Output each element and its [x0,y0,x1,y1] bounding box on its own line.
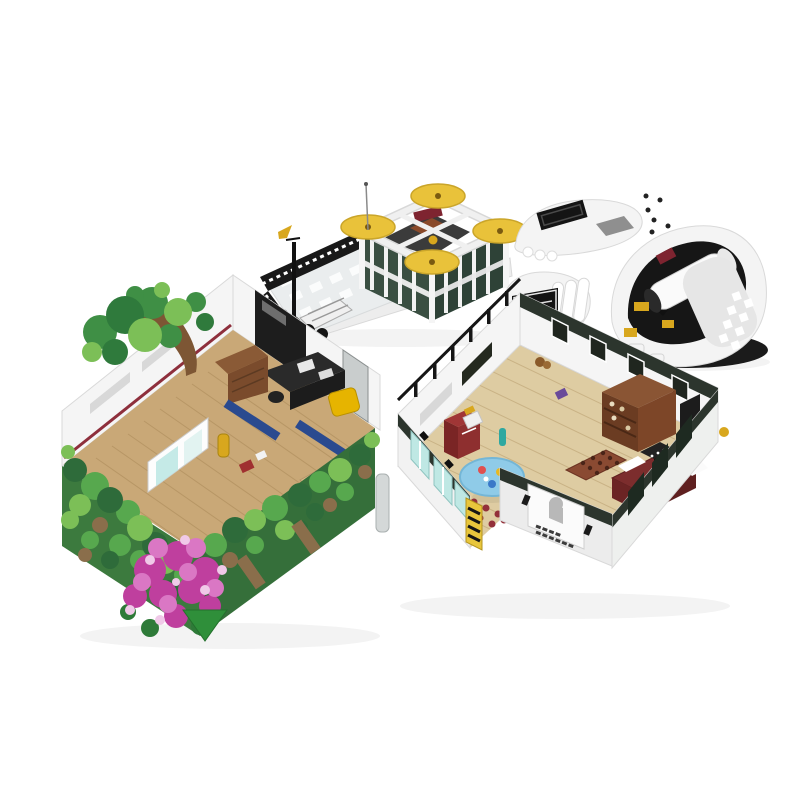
umbrella [405,250,459,274]
corner-sign [466,498,482,550]
teal-bottle [499,428,506,446]
product-photo [0,0,800,800]
downpipe [376,474,389,532]
yellow-bottle [218,434,229,457]
stud-dots [644,194,663,223]
scene-svg [0,0,800,800]
umbrella [411,184,465,208]
lamppost-finial [278,225,292,239]
